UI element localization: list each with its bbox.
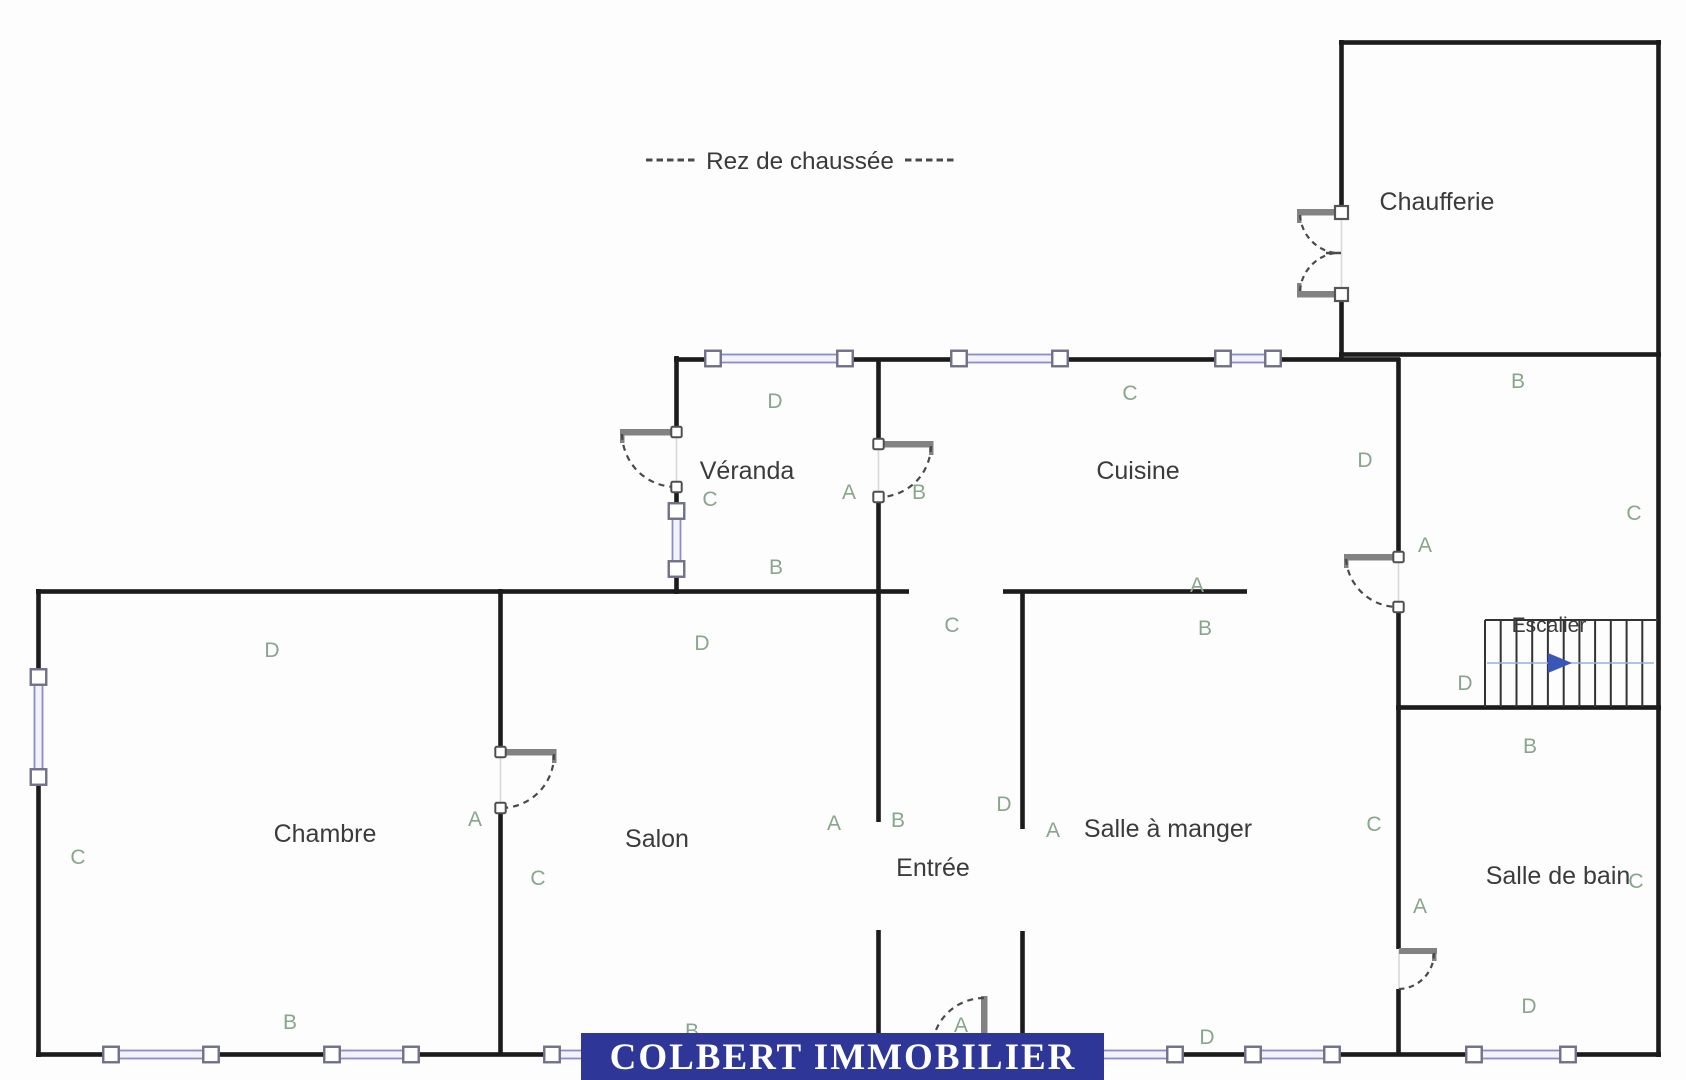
svg-text:B: B [912,481,926,504]
svg-text:D: D [1357,449,1372,472]
svg-text:C: C [702,488,717,511]
svg-text:D: D [264,639,279,662]
svg-text:B: B [1523,735,1537,758]
svg-text:A: A [842,481,856,504]
svg-text:Escalier: Escalier [1512,614,1587,637]
svg-text:C: C [1366,813,1381,836]
svg-text:Chambre: Chambre [274,820,377,848]
svg-text:C: C [1122,382,1137,405]
svg-text:D: D [1521,995,1536,1018]
svg-text:A: A [827,812,841,835]
svg-text:A: A [1190,574,1204,597]
svg-text:B: B [1511,370,1525,393]
svg-text:Rez de chaussée: Rez de chaussée [706,148,894,175]
svg-text:B: B [1198,617,1212,640]
svg-text:D: D [694,632,709,655]
svg-text:Véranda: Véranda [700,457,795,485]
svg-text:C: C [530,867,545,890]
svg-text:D: D [767,390,782,413]
svg-text:Salon: Salon [625,825,689,853]
svg-text:A: A [468,808,482,831]
svg-text:A: A [1418,534,1432,557]
svg-text:B: B [769,556,783,579]
svg-text:A: A [1413,895,1427,918]
svg-text:B: B [891,809,905,832]
svg-text:Cuisine: Cuisine [1096,457,1179,485]
svg-text:B: B [283,1011,297,1034]
svg-text:C: C [944,614,959,637]
svg-text:C: C [1628,870,1643,893]
svg-text:D: D [1457,672,1472,695]
svg-text:Salle de bain: Salle de bain [1486,862,1631,890]
svg-text:D: D [1199,1026,1214,1049]
svg-text:C: C [1626,502,1641,525]
svg-text:Chaufferie: Chaufferie [1380,188,1495,216]
svg-text:A: A [1046,819,1060,842]
svg-text:Salle à manger: Salle à manger [1084,815,1252,843]
svg-text:C: C [70,846,85,869]
svg-text:COLBERT IMMOBILIER: COLBERT IMMOBILIER [610,1037,1077,1078]
svg-text:Entrée: Entrée [896,854,970,882]
svg-text:D: D [996,793,1011,816]
